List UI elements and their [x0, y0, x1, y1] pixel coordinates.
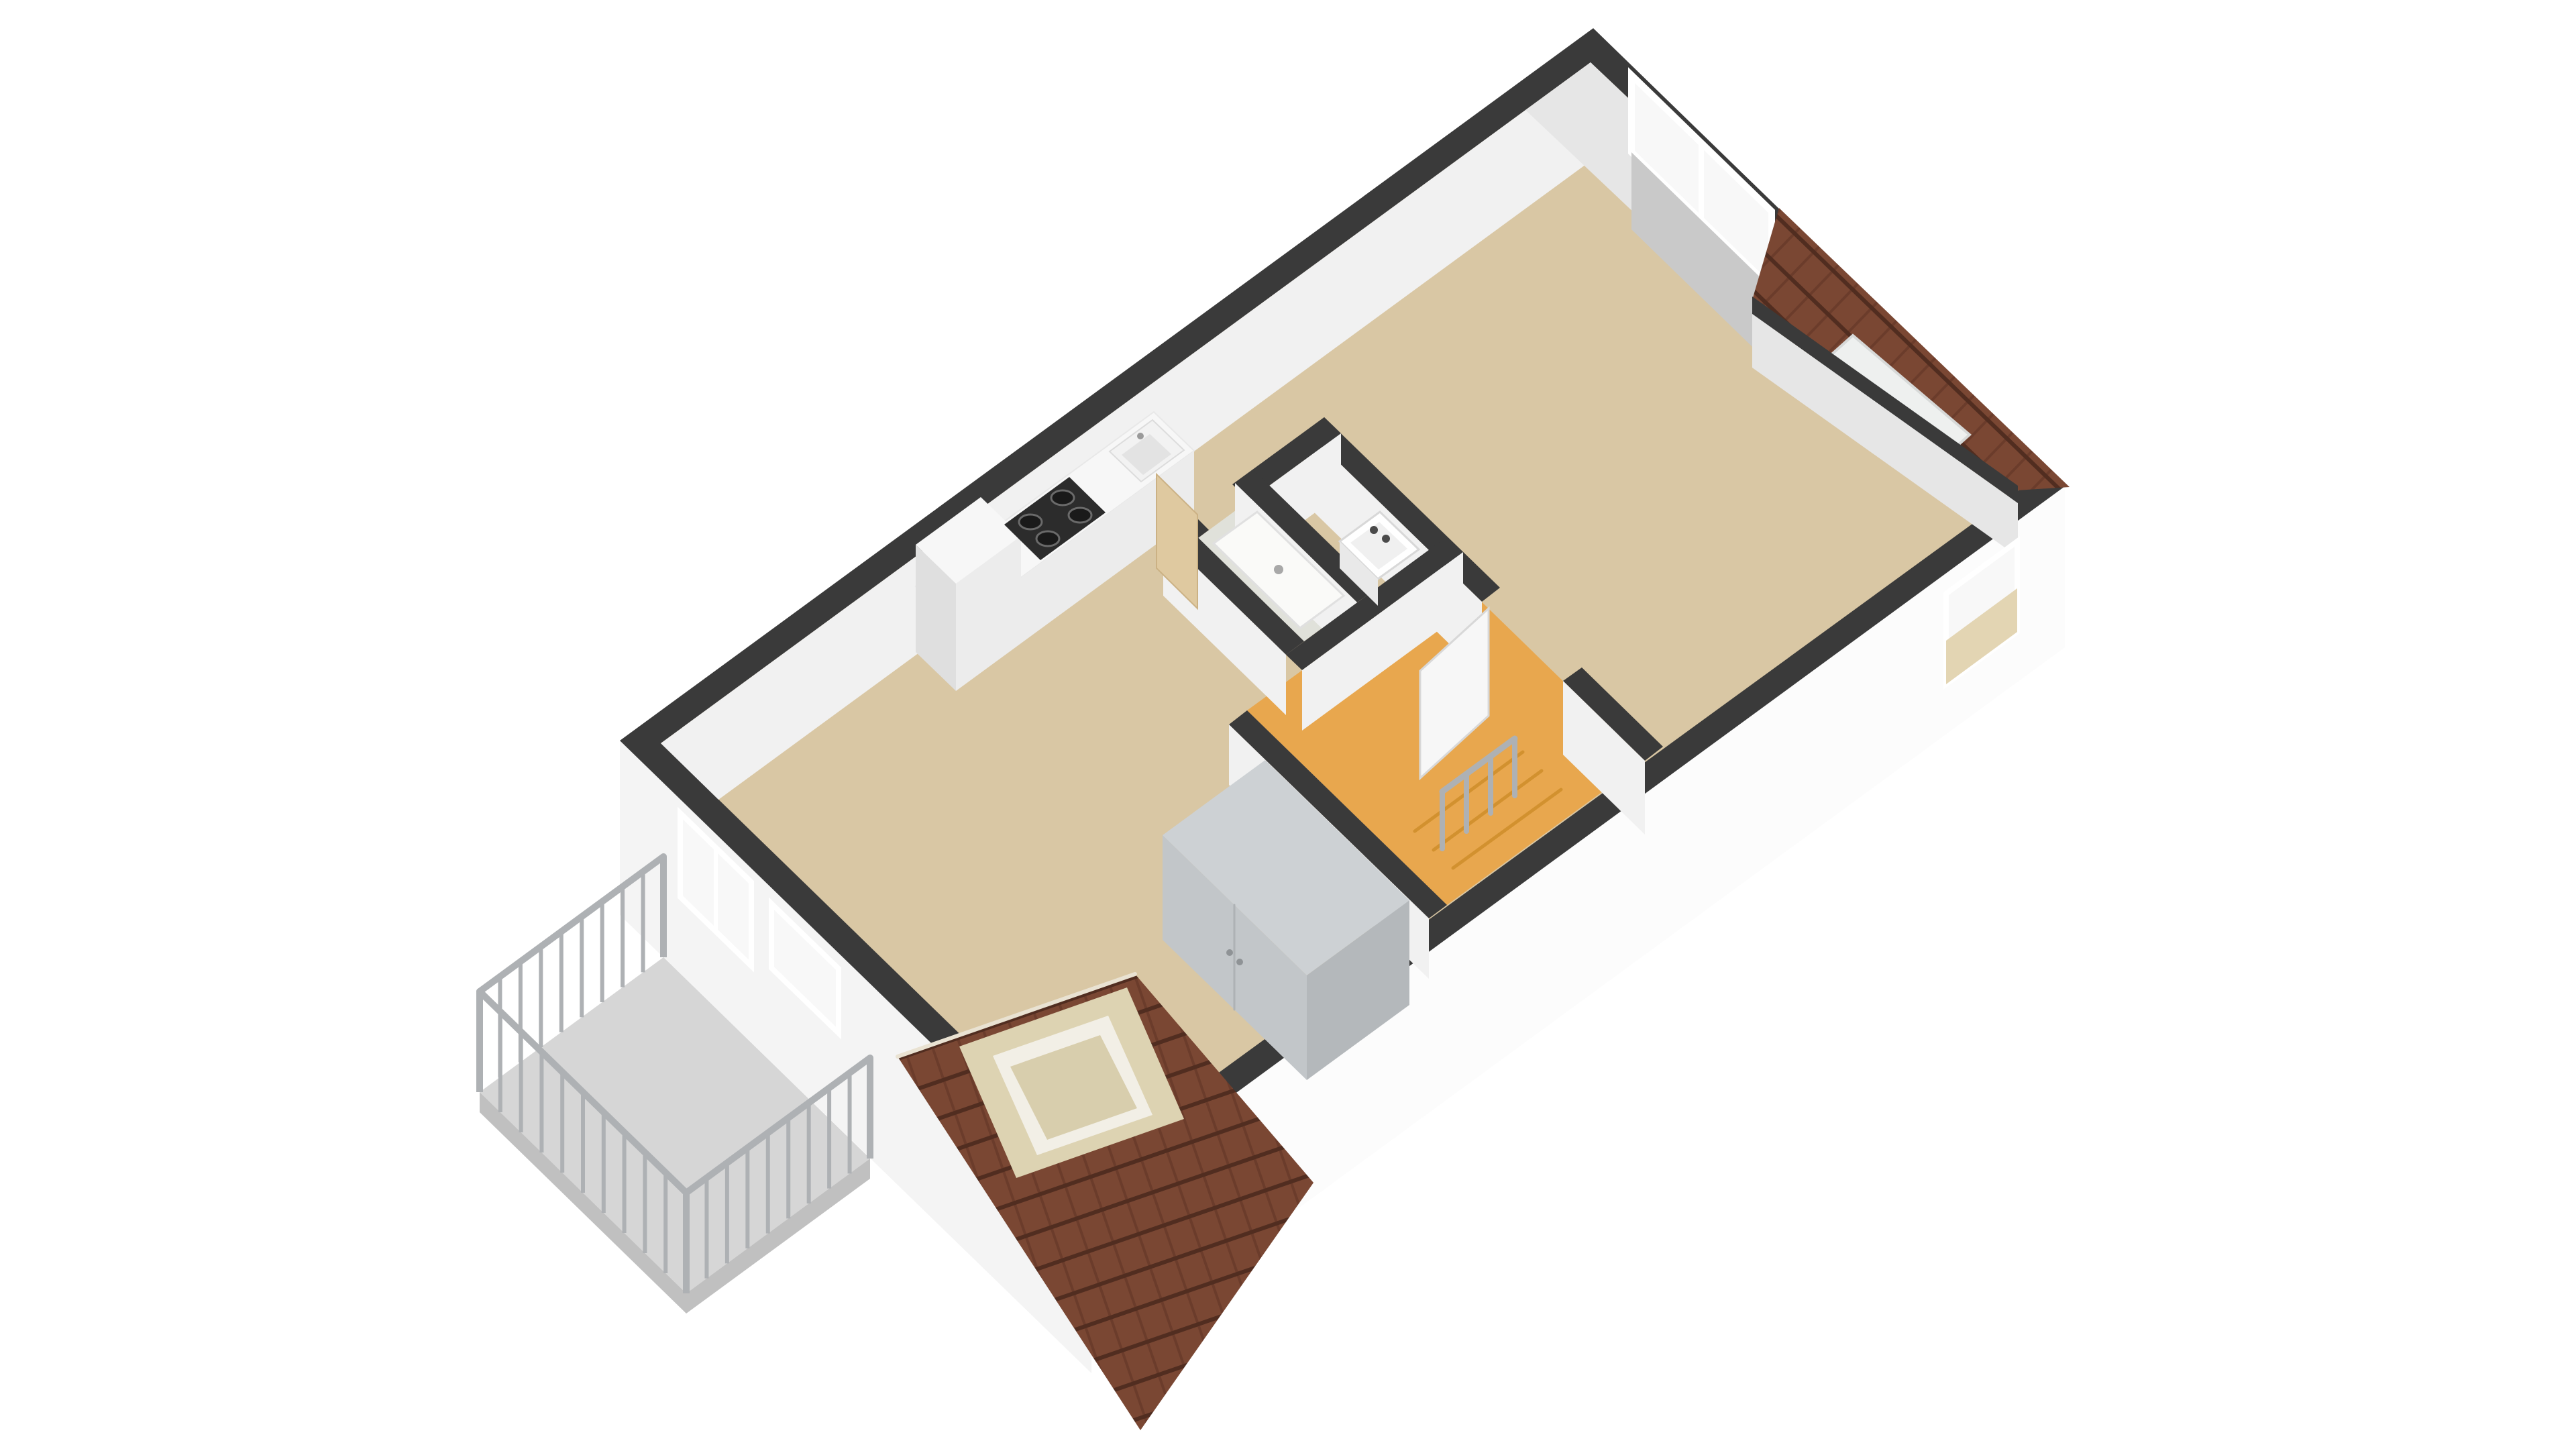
washbasin-tap-dot-1: [1370, 526, 1378, 534]
cooktop-burner-2: [1051, 490, 1074, 505]
floorplan-svg: [0, 0, 2576, 1449]
shower-drain: [1274, 565, 1283, 574]
kitchen-faucet: [1137, 433, 1144, 439]
cooktop-burner-1: [1019, 515, 1042, 529]
floorplan-shapes: [480, 28, 2070, 1430]
washbasin-tap-dot-2: [1382, 535, 1390, 543]
cooktop-burner-4: [1069, 508, 1091, 523]
floorplan-3d-view: [0, 0, 2576, 1449]
wardrobe-handle-2: [1236, 959, 1243, 965]
cooktop-burner-3: [1036, 531, 1059, 546]
wardrobe-handle-1: [1226, 949, 1233, 956]
